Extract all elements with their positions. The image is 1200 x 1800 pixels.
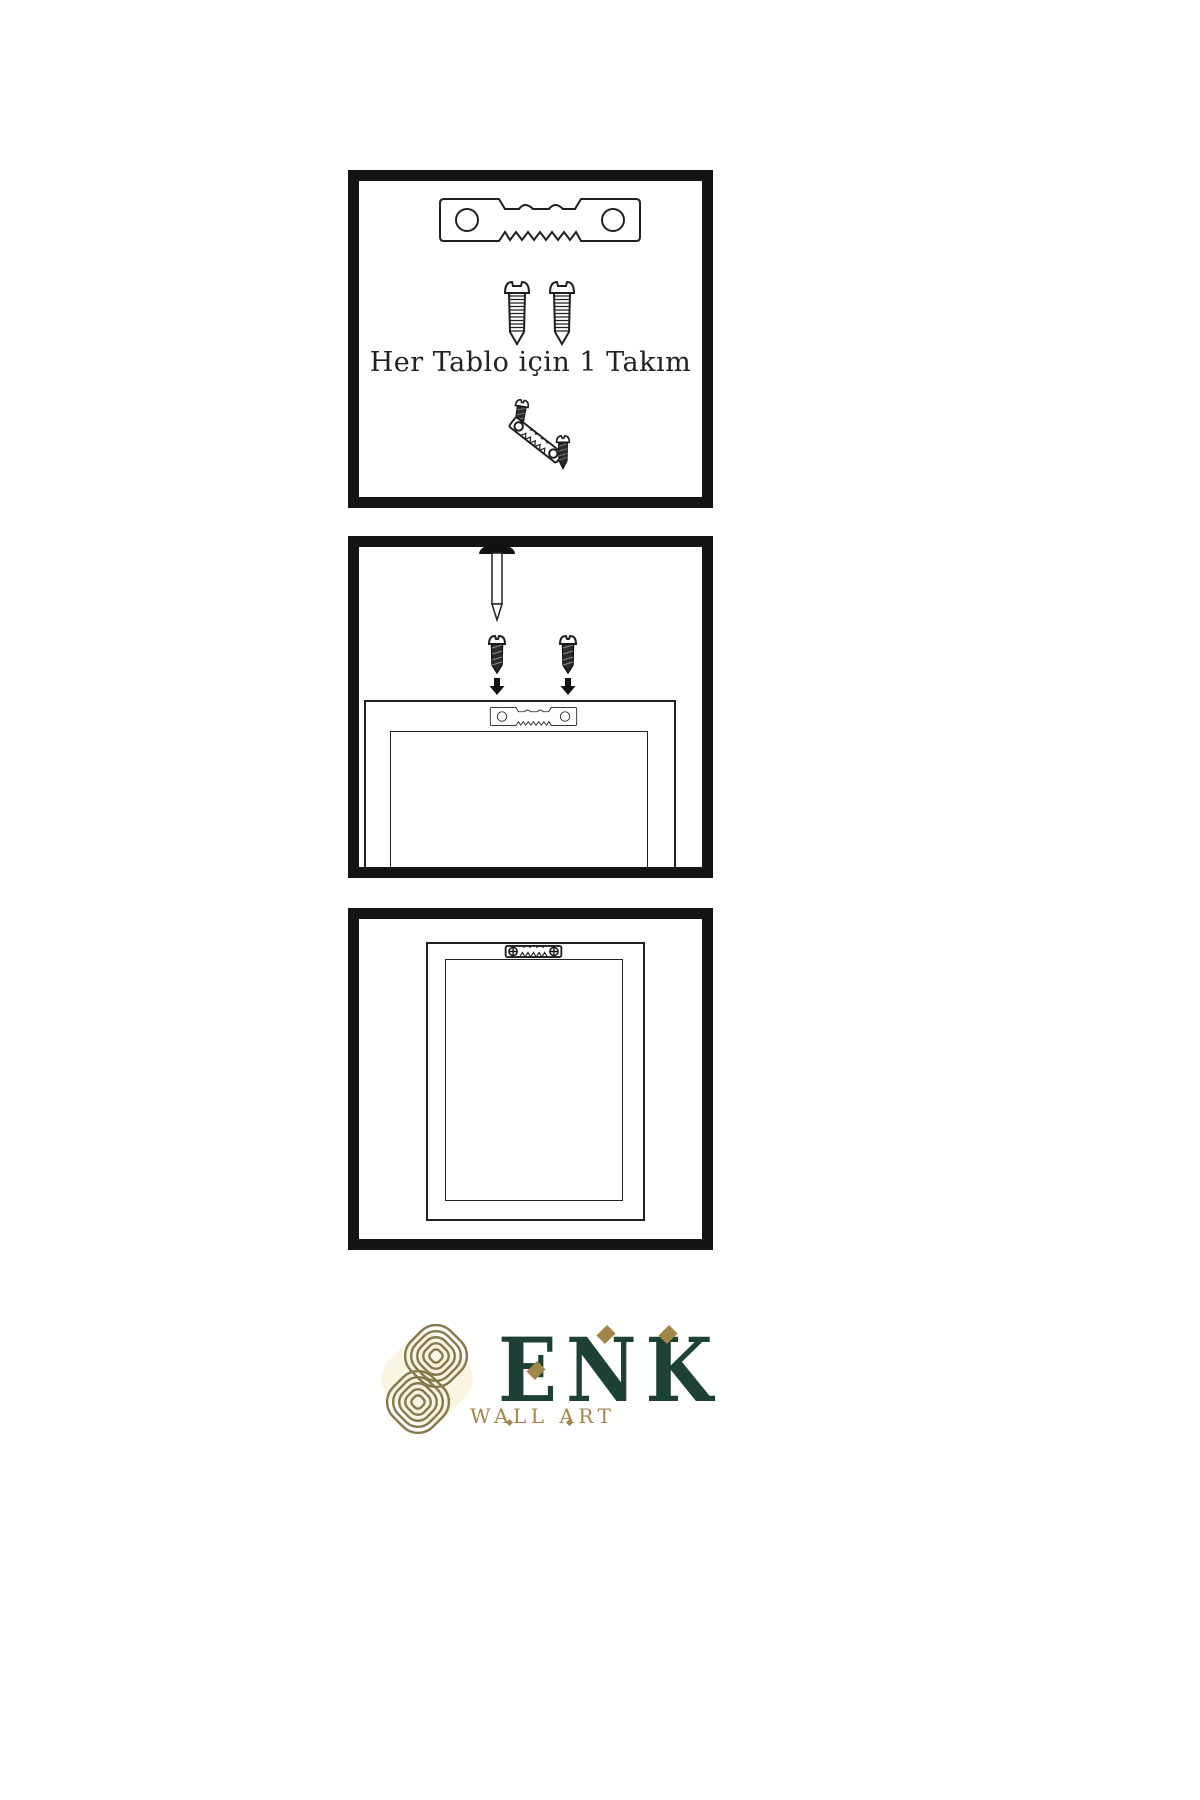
panel-mounting-step <box>348 536 713 878</box>
frame-back-inner-outline <box>390 731 648 868</box>
kit-caption: Her Tablo için 1 Takım <box>359 347 702 378</box>
brand-knot-icon <box>379 1316 475 1442</box>
brand-tagline: WALL ART <box>470 1406 615 1426</box>
mounted-sawtooth-hanger-icon <box>504 945 563 958</box>
sawtooth-hanger-on-frame-icon <box>489 706 578 727</box>
wall-nail-icon <box>478 544 516 622</box>
screw-icon <box>548 280 576 346</box>
dark-screw-icon <box>555 435 571 472</box>
hanging-frame-inner-outline <box>445 959 623 1201</box>
panel-hung-frame <box>348 908 713 1250</box>
dark-screw-arrow-icon <box>487 635 507 695</box>
panel-hardware-kit: Her Tablo için 1 Takım <box>348 170 713 508</box>
screw-icon <box>503 280 531 346</box>
dark-screw-arrow-icon <box>558 635 578 695</box>
sawtooth-hanger-icon <box>437 196 643 244</box>
